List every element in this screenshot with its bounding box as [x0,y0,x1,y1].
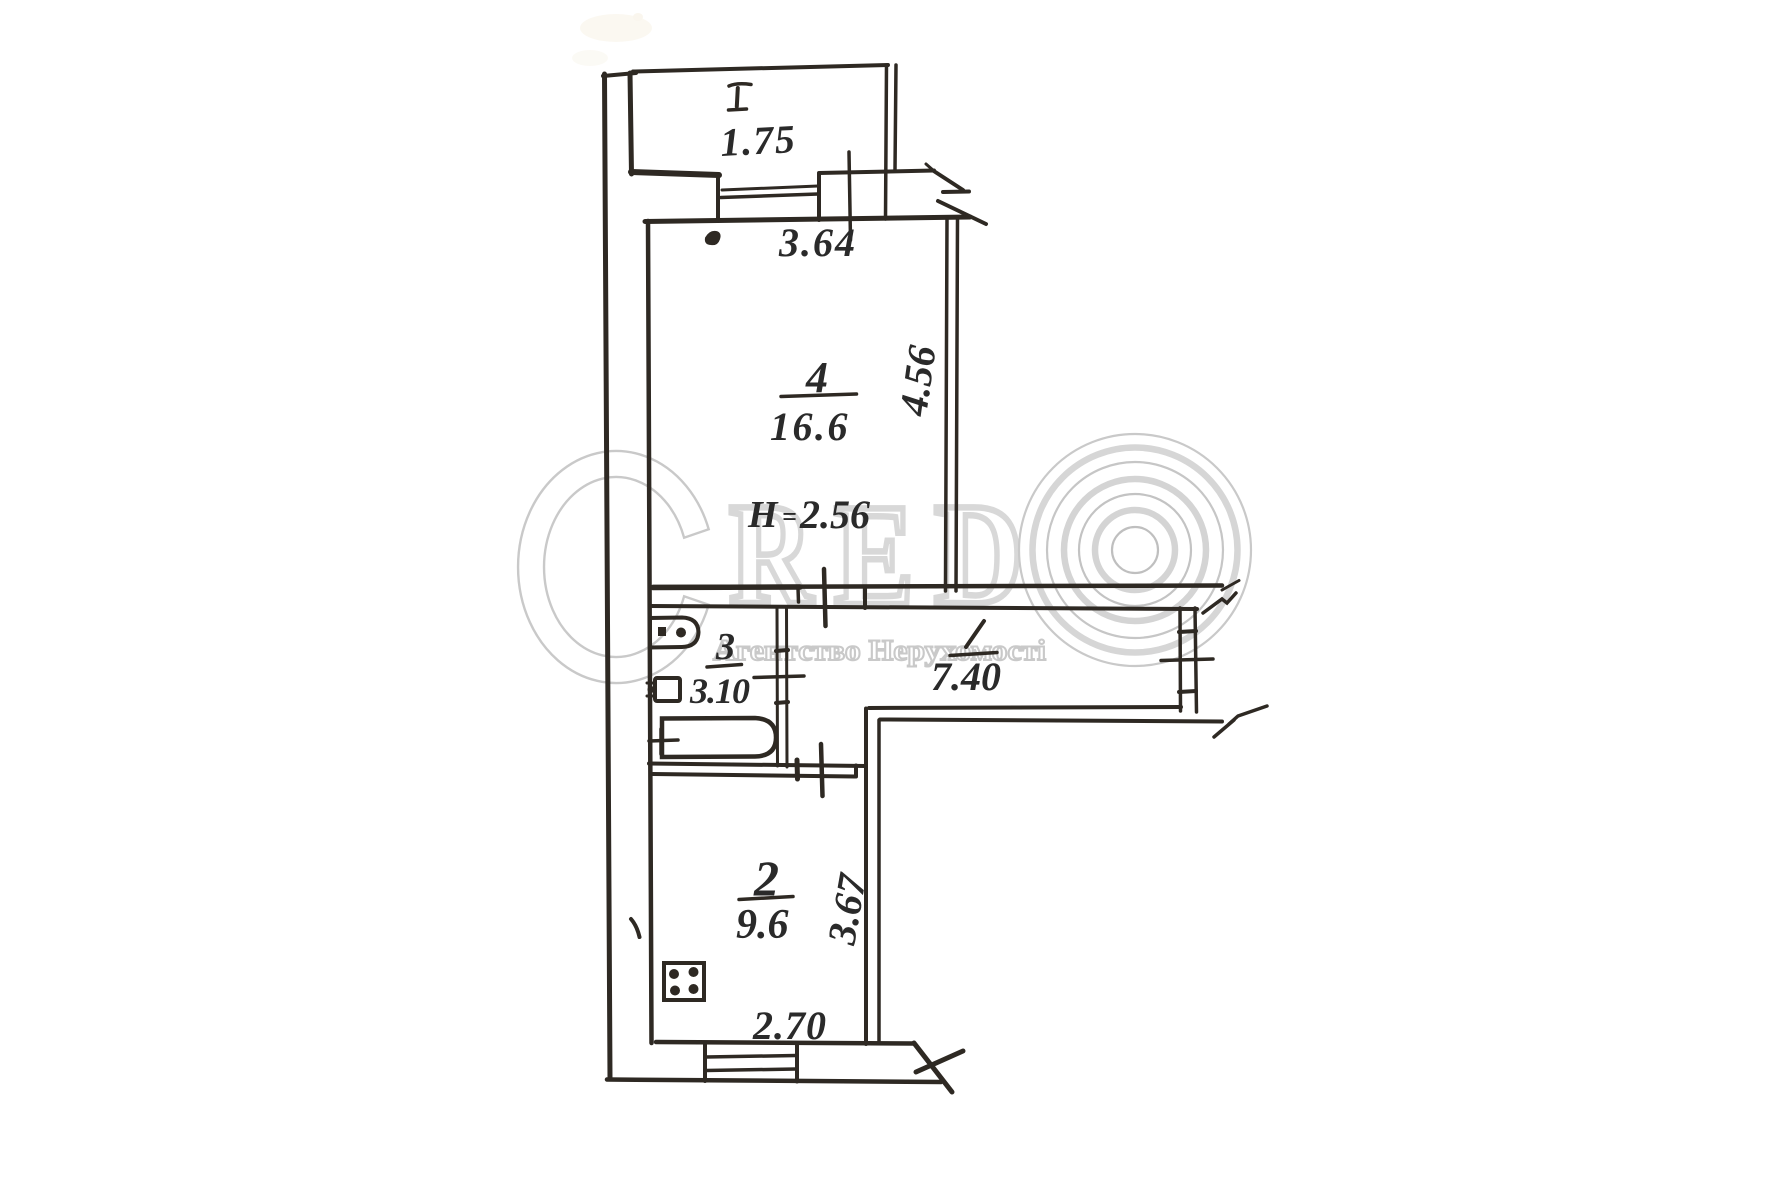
svg-text:9.6: 9.6 [736,902,789,948]
svg-text:16.6: 16.6 [770,404,850,449]
svg-text:7.40: 7.40 [931,654,1001,699]
svg-text:4: 4 [805,353,828,402]
svg-text:2: 2 [753,850,779,906]
svg-text:1.75: 1.75 [719,116,797,165]
svg-text:3.10: 3.10 [689,671,750,711]
svg-text:H: H [747,494,779,536]
svg-text:2.56: 2.56 [799,492,870,537]
svg-text:3.64: 3.64 [778,220,857,265]
svg-text:2.70: 2.70 [752,1003,827,1048]
svg-text:3: 3 [715,626,735,668]
svg-text:=: = [782,502,797,531]
